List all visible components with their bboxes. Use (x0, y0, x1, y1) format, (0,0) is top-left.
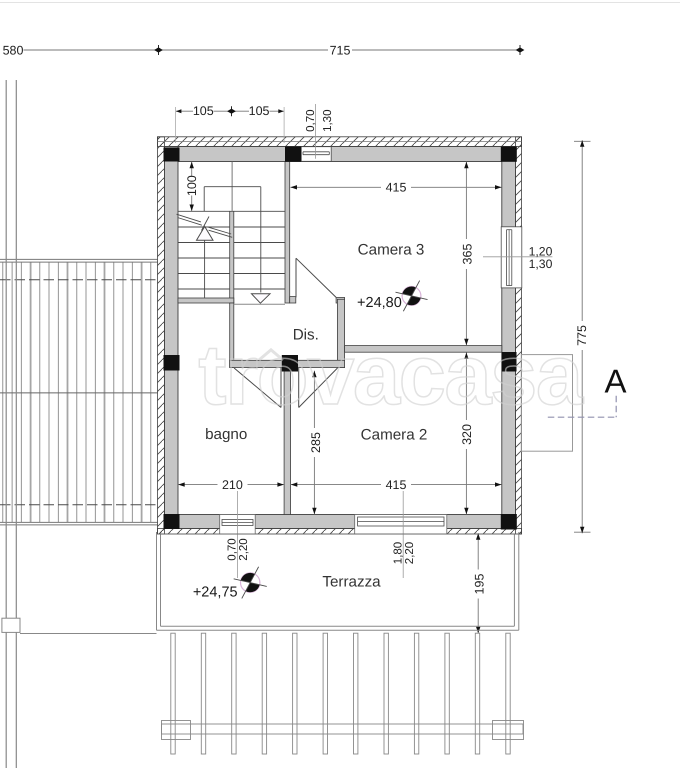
svg-text:1,30: 1,30 (529, 257, 553, 271)
svg-text:100: 100 (185, 175, 199, 196)
svg-text:2,20: 2,20 (238, 538, 250, 560)
svg-text:415: 415 (386, 181, 407, 195)
svg-text:0,70: 0,70 (227, 538, 239, 560)
svg-text:105: 105 (249, 104, 270, 118)
svg-text:320: 320 (460, 424, 474, 445)
svg-text:210: 210 (222, 478, 243, 492)
svg-text:0,70: 0,70 (305, 110, 317, 132)
svg-text:2,20: 2,20 (404, 542, 416, 564)
svg-text:580: 580 (3, 43, 24, 57)
svg-text:285: 285 (309, 432, 323, 453)
svg-text:715: 715 (330, 43, 351, 57)
svg-text:1,30: 1,30 (322, 110, 334, 132)
svg-text:Camera 2: Camera 2 (361, 426, 428, 443)
svg-text:415: 415 (386, 478, 407, 492)
svg-text:1,80: 1,80 (392, 542, 404, 564)
svg-text:bagno: bagno (205, 426, 247, 443)
svg-text:195: 195 (472, 574, 486, 595)
svg-text:105: 105 (193, 104, 214, 118)
svg-text:trovacasa: trovacasa (198, 328, 584, 423)
svg-text:365: 365 (460, 244, 474, 265)
svg-text:Camera 3: Camera 3 (358, 241, 425, 258)
svg-text:Terrazza: Terrazza (322, 573, 381, 590)
svg-text:+24,80: +24,80 (357, 295, 402, 311)
svg-text:+24,75: +24,75 (193, 584, 238, 600)
svg-text:A: A (604, 363, 626, 400)
